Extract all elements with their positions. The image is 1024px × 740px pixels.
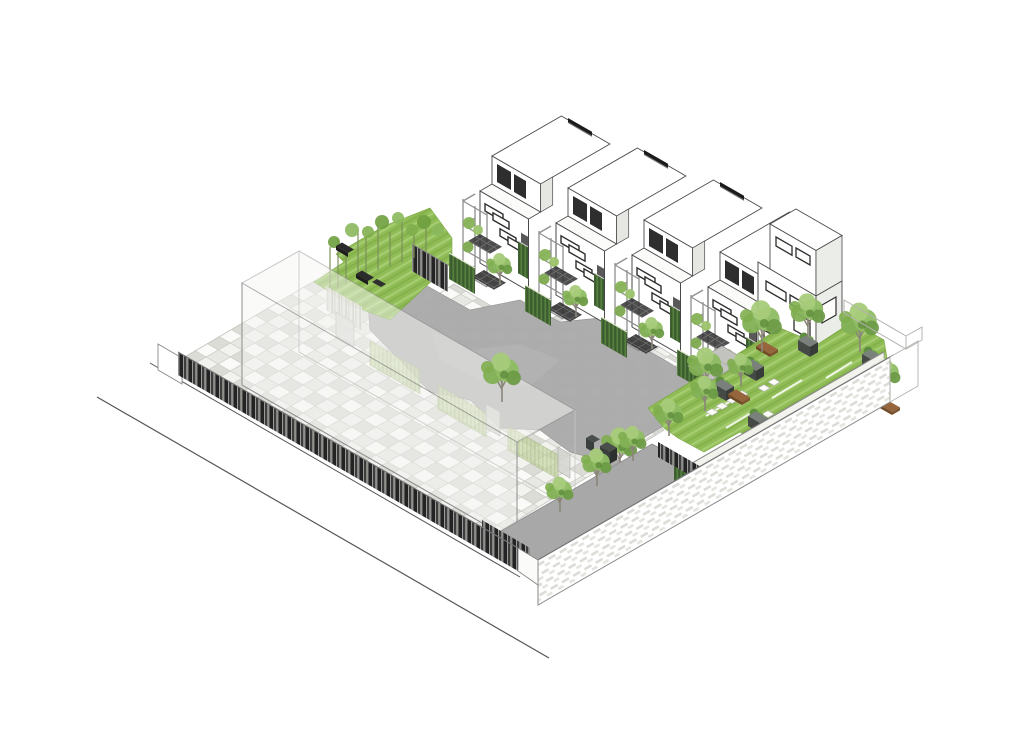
axonometric-site-rendering (0, 0, 1024, 740)
